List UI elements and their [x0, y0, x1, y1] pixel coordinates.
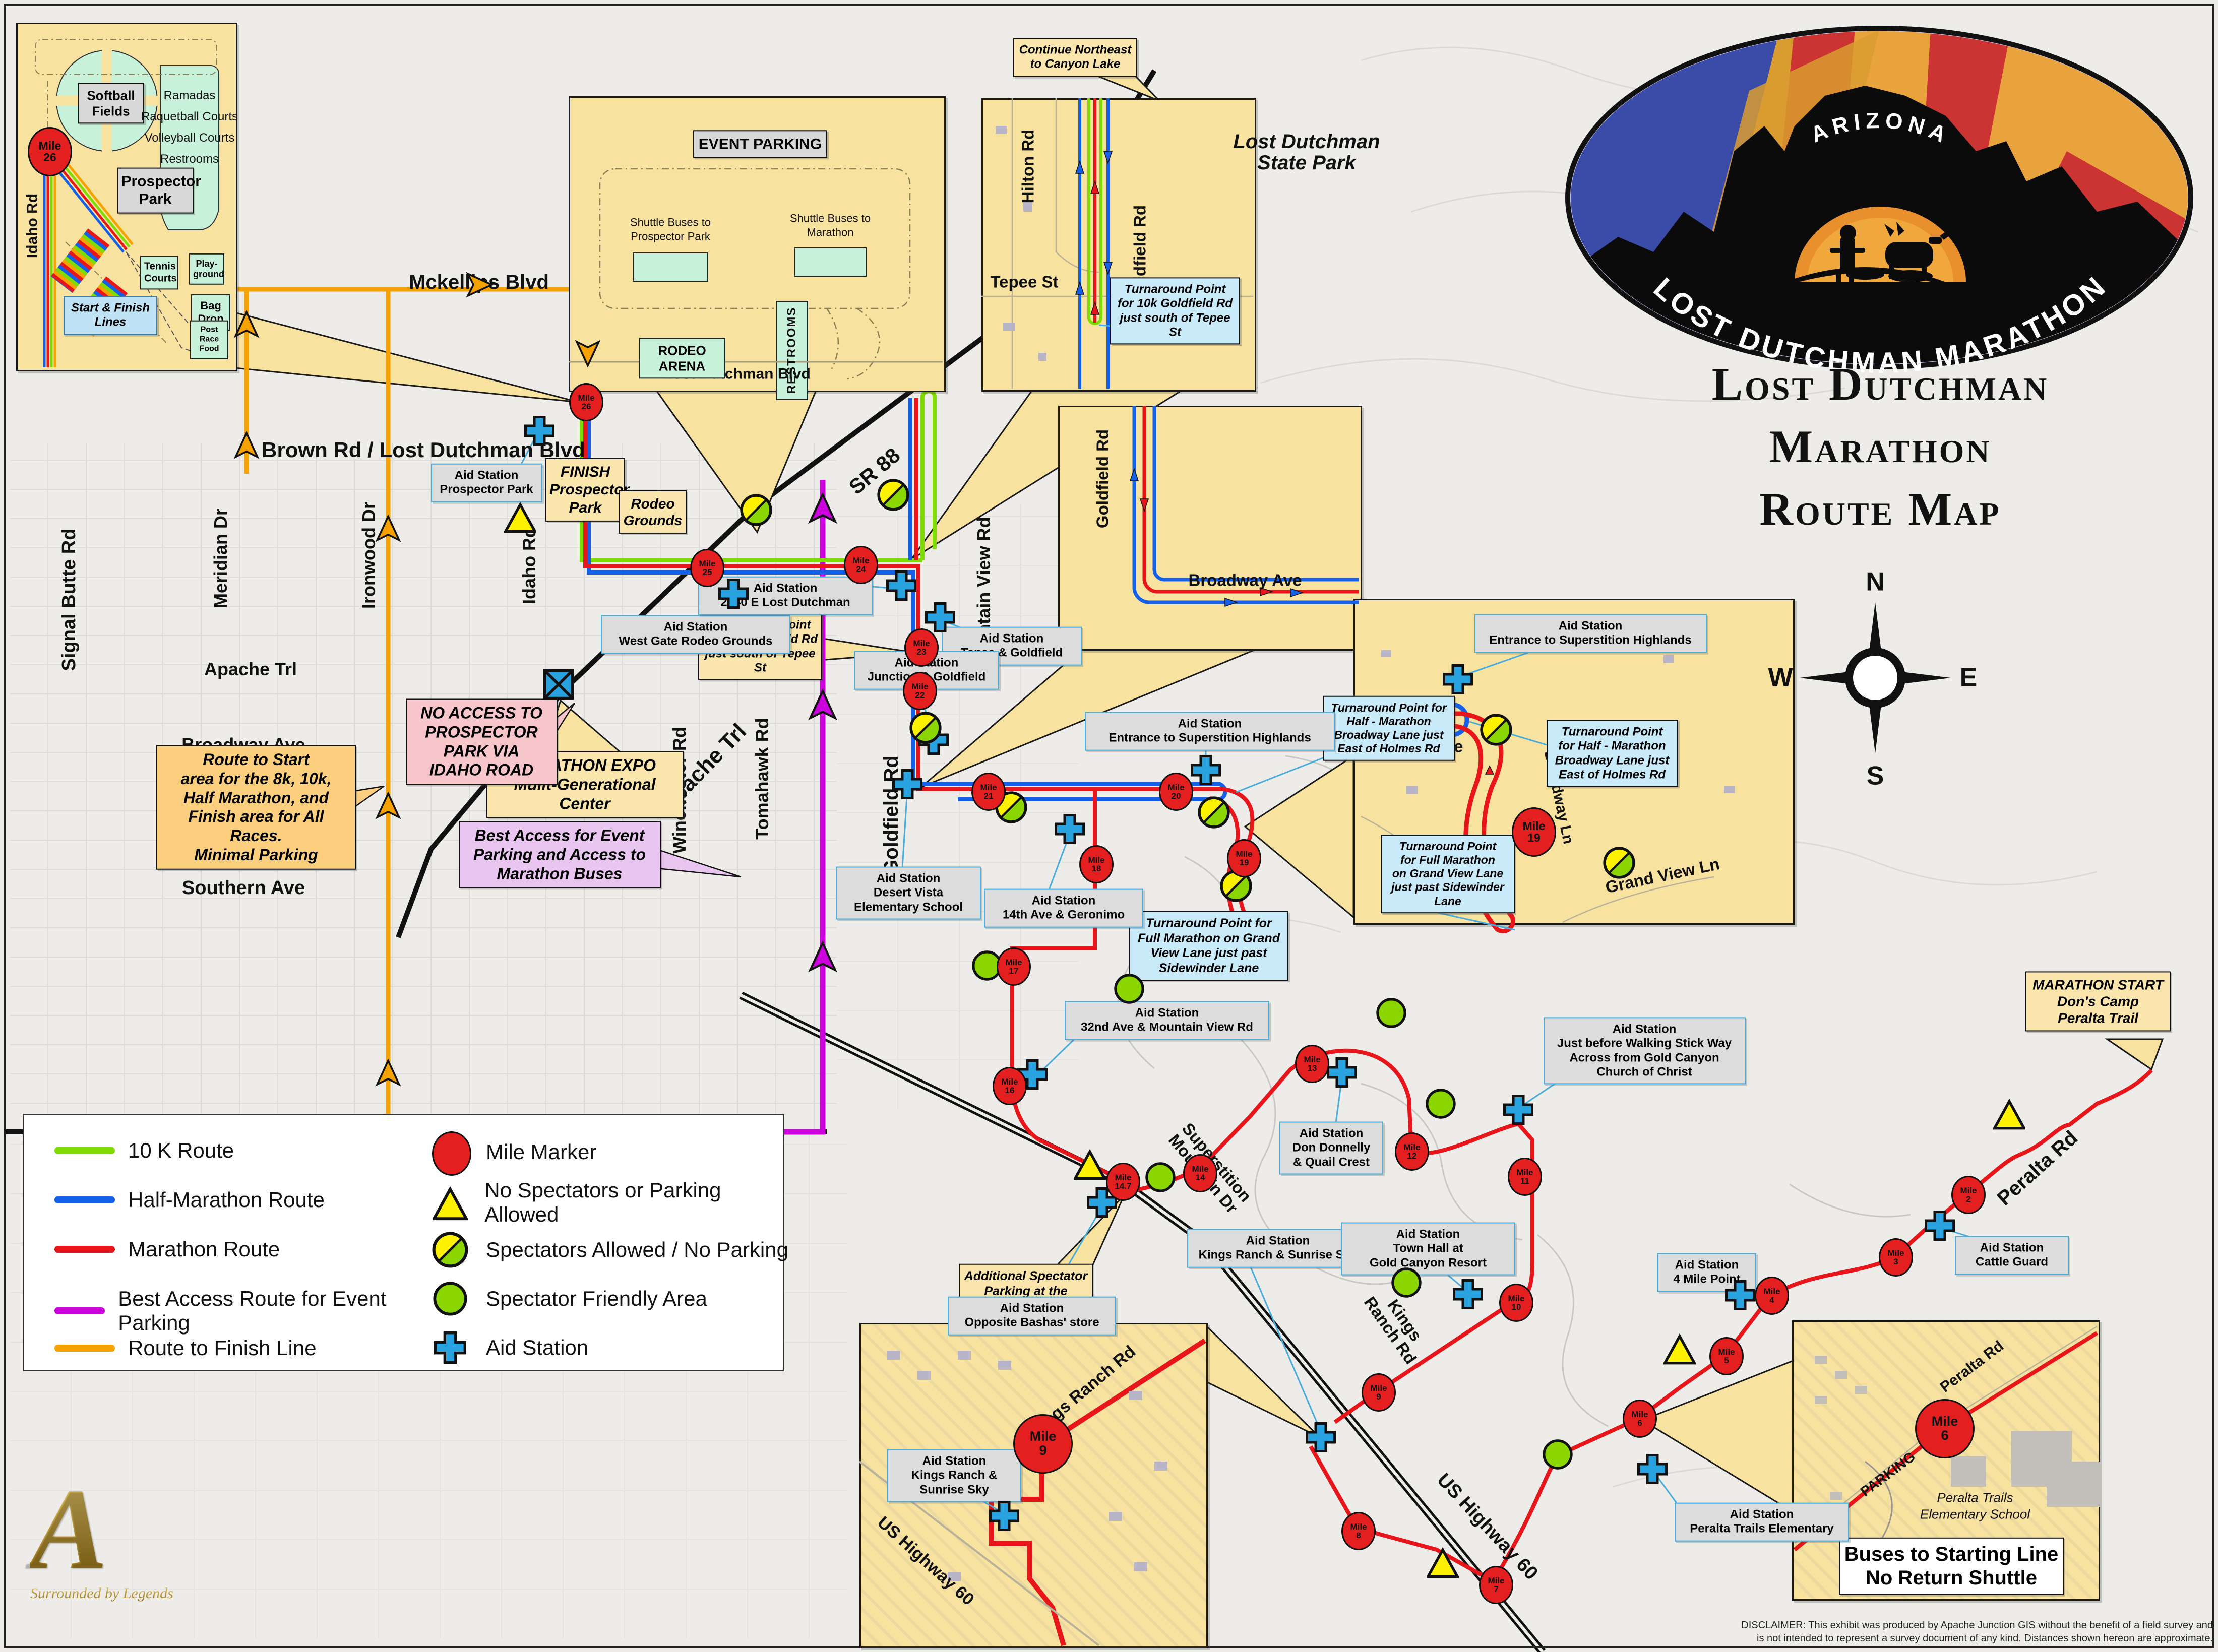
mile-marker: Mile23 — [904, 628, 939, 667]
legend-route-label: Best Access Route for Event Parking — [118, 1287, 407, 1335]
mile-marker: Mile14 — [1183, 1154, 1217, 1192]
mile-marker-number: 3 — [1893, 1257, 1898, 1266]
mile-marker-number: 18 — [1092, 864, 1101, 873]
route-arrow — [232, 310, 261, 340]
aid-station-icon — [1725, 1280, 1755, 1310]
street-label-vertical: Meridian Dr — [211, 509, 230, 608]
mile-marker-word: Mile — [1403, 1143, 1420, 1152]
aid-station-label: Aid Station Cattle Guard — [1955, 1236, 2069, 1275]
mile-marker-number: 26 — [582, 402, 591, 411]
mile-marker-number: 11 — [1520, 1177, 1529, 1185]
disclaimer: DISCLAIMER: This exhibit was produced by… — [1741, 1619, 2213, 1645]
legend-symbol-icon-holder — [427, 1129, 473, 1175]
aid-station-label: Aid Station Just before Walking Stick Wa… — [1544, 1017, 1746, 1084]
marathon-expo-icon — [542, 668, 575, 701]
mile-marker: Mile17 — [997, 947, 1031, 986]
street-label-vertical: Idaho Rd — [520, 527, 539, 604]
street-label: Tepee St — [990, 274, 1058, 291]
title-line-3: Route Map — [1633, 478, 2127, 540]
route-arrow — [573, 338, 602, 367]
map-title: Lost Dutchman Marathon Route Map — [1633, 353, 2127, 541]
mile-marker: Mile9 — [1013, 1414, 1073, 1474]
mile-marker-word: Mile — [913, 639, 930, 648]
mile-marker: Mile6 — [1623, 1400, 1657, 1438]
aid-station-icon — [1925, 1211, 1955, 1241]
best-access-note: Best Access for Event Parking and Access… — [459, 821, 661, 888]
mile-marker-number: 13 — [1308, 1064, 1317, 1072]
compass-letter-n: N — [1866, 568, 1885, 596]
branding-monogram: A — [30, 1477, 192, 1581]
street-label-vertical: Idaho Rd — [24, 194, 40, 258]
mile-marker-number: 23 — [917, 648, 927, 656]
street-label: Peralta Rd — [1937, 1338, 2006, 1395]
inset-text: Restrooms — [160, 152, 219, 167]
mile-marker-number: 26 — [43, 152, 56, 163]
mile-marker-word: Mile — [1370, 1384, 1387, 1392]
mile-marker-word: Mile — [1523, 820, 1546, 832]
aid-station-label: Aid Station Peralta Trails Elementary — [1675, 1503, 1849, 1542]
facility-label: Play- ground — [189, 253, 224, 285]
mile-marker-number: 22 — [915, 691, 925, 700]
spectator-friendly-icon — [1542, 1439, 1573, 1470]
mile-marker: Mile9 — [1362, 1373, 1396, 1412]
mile-marker-number: 17 — [1009, 967, 1019, 975]
aid-station-icon — [524, 416, 555, 446]
mile-marker: Mile21 — [971, 773, 1006, 811]
aid-station-icon — [1637, 1454, 1668, 1484]
mile-marker: Mile3 — [1879, 1238, 1913, 1277]
street-label-vertical: Hilton Rd — [1020, 130, 1037, 204]
mile-marker-number: 2 — [1966, 1195, 1970, 1203]
aid-station-icon — [1327, 1057, 1357, 1088]
inset-text: Volleyball Courts — [145, 131, 235, 146]
facility-label: RODEO ARENA — [639, 338, 725, 378]
aid-station-label: Aid Station Don Donnelly & Quail Crest — [1279, 1122, 1383, 1175]
aid-station-label: Aid Station Kings Ranch & Sunrise Sky — [887, 1449, 1021, 1502]
mile-marker-number: 25 — [703, 568, 712, 577]
disclaimer-line-2: is not intended to represent a survey do… — [1741, 1632, 2213, 1645]
mile-marker-number: 24 — [856, 565, 866, 574]
mile-marker: Mile5 — [1709, 1337, 1744, 1375]
map-canvas: ARIZONA LOST DUTCHMAN MARATHON 10 K Rout… — [0, 0, 2218, 1652]
route-arrow — [464, 270, 494, 299]
legend-route-item: Half-Marathon Route — [54, 1188, 407, 1212]
mile-marker: Mile13 — [1295, 1045, 1329, 1083]
inset-text: RESTROOMS — [784, 307, 799, 394]
inset-text: Shuttle Buses to Marathon — [790, 212, 871, 239]
legend-symbol-item: Aid Station — [427, 1325, 790, 1370]
spectator-friendly-icon — [1376, 997, 1407, 1029]
mile-marker-word: Mile — [699, 559, 715, 568]
aid-station-label: Aid Station Opposite Bashas' store — [948, 1297, 1116, 1336]
mile-marker-word: Mile — [1631, 1410, 1648, 1419]
aid-station-label: Aid Station Desert Vista Elementary Scho… — [836, 867, 981, 920]
legend-symbol-label: Spectator Friendly Area — [486, 1287, 707, 1311]
legend-route-label: Marathon Route — [128, 1237, 280, 1261]
legend-route-swatch — [54, 1246, 115, 1253]
mile-marker-word: Mile — [1508, 1294, 1524, 1303]
legend-symbol-label: No Spectators or Parking Allowed — [484, 1178, 790, 1227]
mile-marker-number: 9 — [1376, 1392, 1381, 1401]
spectator-friendly-icon — [433, 1281, 468, 1316]
no-spectators-icon — [1664, 1333, 1696, 1366]
street-label: Peralta Rd — [1993, 1127, 2081, 1210]
mile-marker-word: Mile — [1763, 1287, 1780, 1296]
branding-text: Surrounded by Legends — [30, 1585, 192, 1602]
mile-marker-number: 9 — [1039, 1444, 1046, 1458]
mile-marker-number: 14.7 — [1115, 1182, 1131, 1190]
mile-marker-word: Mile — [980, 783, 997, 792]
route-arrow — [806, 941, 839, 974]
mile-marker-word: Mile — [1192, 1165, 1208, 1173]
callout-note: Continue Northeast to Canyon Lake — [1013, 38, 1137, 77]
spectator-friendly-icon — [1145, 1162, 1176, 1193]
aid-station-label: Aid Station Entrance to Superstition Hig… — [1085, 712, 1335, 751]
route-to-start-note: Route to Start area for the 8k, 10k, Hal… — [156, 745, 356, 870]
inset-text: Peralta Trails Elementary School — [1920, 1490, 2030, 1522]
mile-marker-word: Mile — [1115, 1173, 1131, 1182]
mile-marker: Mile12 — [1395, 1132, 1429, 1171]
legend-route-label: 10 K Route — [128, 1138, 234, 1163]
legend-route-swatch — [54, 1307, 105, 1314]
compass-letter-w: W — [1768, 664, 1793, 692]
aid-station-label: Aid Station Entrance to Superstition Hig… — [1474, 614, 1707, 653]
title-line-1: Lost Dutchman — [1633, 353, 2127, 415]
mile-marker: Mile20 — [1159, 773, 1193, 811]
spectators-no-parking-icon — [1197, 796, 1230, 829]
spectator-friendly-icon — [1391, 1267, 1422, 1298]
aid-station-icon — [925, 602, 955, 632]
no-spectators-icon — [1427, 1547, 1459, 1579]
aid-station-icon — [1443, 664, 1473, 694]
mile-marker-number: 6 — [1941, 1429, 1948, 1443]
aid-station-label: Aid Station Prospector Park — [431, 464, 542, 502]
route-arrow — [806, 689, 839, 722]
aid-station-icon — [1453, 1279, 1483, 1309]
street-label-vertical: Tomahawk Rd — [753, 718, 772, 839]
mile-marker-number: 10 — [1512, 1303, 1521, 1311]
mile-marker-word: Mile — [1932, 1415, 1958, 1429]
spectators-no-parking-icon — [1480, 713, 1513, 746]
legend-symbol-icon-holder — [427, 1276, 473, 1321]
street-label-vertical: Signal Butte Rd — [59, 529, 80, 671]
mile-marker: Mile8 — [1341, 1512, 1376, 1550]
legend-route-item: Marathon Route — [54, 1237, 407, 1261]
no-spectators-icon — [1993, 1099, 2025, 1131]
mile-marker — [432, 1131, 471, 1176]
aid-station-icon — [434, 1331, 466, 1364]
aid-station-icon — [1055, 814, 1085, 844]
mile-marker-word: Mile — [1350, 1522, 1367, 1531]
mile-marker: Mile18 — [1079, 845, 1114, 883]
mile-marker-number: 5 — [1724, 1356, 1729, 1365]
aid-station-label: Aid Station 32nd Ave & Mountain View Rd — [1065, 1001, 1269, 1040]
area-label: Prospector Park — [117, 168, 194, 214]
mile-marker: Mile19 — [1227, 839, 1261, 877]
mile-marker-word: Mile — [1088, 856, 1104, 864]
legend-symbol-item: Spectator Friendly Area — [427, 1276, 790, 1321]
no-spectators-icon — [1074, 1149, 1106, 1181]
legend-symbol-icon-holder — [427, 1325, 473, 1370]
mile-marker: Mile11 — [1508, 1158, 1542, 1196]
mile-marker: Mile14.7 — [1106, 1163, 1140, 1201]
mile-marker-word: Mile — [1001, 1077, 1018, 1086]
branding-logo: A Surrounded by Legends — [30, 1477, 192, 1602]
route-arrow — [374, 792, 403, 821]
facility-label: Post Race Food — [190, 321, 228, 359]
legend-symbol-label: Mile Marker — [486, 1140, 596, 1164]
legend-symbol-label: Spectators Allowed / No Parking — [486, 1238, 788, 1262]
legend-route-label: Half-Marathon Route — [128, 1188, 325, 1212]
mile-marker: Mile25 — [690, 549, 724, 587]
mile-marker-number: 4 — [1769, 1296, 1774, 1304]
mile-marker: Mile16 — [993, 1067, 1027, 1105]
aid-station-icon — [989, 1501, 1019, 1531]
title-line-2: Marathon — [1633, 415, 2127, 478]
street-label: Broadway Ave — [1189, 572, 1302, 590]
mile-marker-word: Mile — [578, 394, 594, 402]
mile-marker-word: Mile — [1516, 1168, 1533, 1177]
aid-station-icon — [718, 579, 749, 609]
mile-marker-number: 12 — [1407, 1152, 1417, 1160]
mile-marker-word: Mile — [1167, 783, 1184, 792]
mile-marker: Mile26 — [569, 383, 603, 421]
street-label: Apache Trl — [204, 660, 297, 679]
mile-marker: Mile2 — [1951, 1176, 1986, 1214]
turnaround-note: Turnaround Point for Full Marathon on Gr… — [1129, 911, 1288, 981]
route-arrow — [806, 492, 839, 526]
aid-station-label: Aid Station Town Hall at Gold Canyon Res… — [1341, 1223, 1515, 1276]
mile-marker-word: Mile — [1030, 1430, 1057, 1444]
legend-symbol-label: Aid Station — [486, 1336, 588, 1360]
mile-marker-number: 20 — [1172, 792, 1181, 800]
mile-marker-number: 21 — [984, 792, 994, 800]
mile-marker: Mile10 — [1499, 1284, 1533, 1322]
aid-station-label: Aid Station 14th Ave & Geronimo — [984, 889, 1143, 928]
disclaimer-line-1: DISCLAIMER: This exhibit was produced by… — [1741, 1619, 2213, 1632]
mile-marker-word: Mile — [852, 556, 869, 565]
mile-marker-number: 19 — [1527, 832, 1541, 844]
aid-station-label: Aid Station West Gate Rodeo Grounds — [601, 615, 790, 654]
mile-marker: Mile26 — [28, 127, 72, 176]
area-label: Softball Fields — [78, 83, 144, 123]
spectator-friendly-icon — [1114, 973, 1145, 1004]
spectators-no-parking-icon — [877, 478, 910, 512]
mile-marker-word: Mile — [1304, 1055, 1320, 1064]
street-label: PARKING — [1858, 1449, 1918, 1499]
street-label: US Highway 60 — [874, 1513, 977, 1609]
turnaround-note: Turnaround Point for Half - Marathon Bro… — [1323, 696, 1455, 761]
legend-symbol-item: Spectators Allowed / No Parking — [427, 1227, 790, 1273]
legend-route-item: 10 K Route — [54, 1138, 407, 1163]
mile-marker-word: Mile — [1005, 958, 1022, 967]
inset-text: Shuttle Buses to Prospector Park — [630, 216, 711, 243]
mile-marker-word: Mile — [911, 682, 928, 691]
mile-marker-word: Mile — [1718, 1348, 1735, 1356]
start-finish-label: Start & Finish Lines — [64, 296, 157, 335]
street-label: Southern Ave — [182, 878, 305, 899]
callout-note: MARATHON START Don's Camp Peralta Trail — [2025, 971, 2171, 1031]
mile-marker: Mile24 — [844, 546, 878, 584]
mile-marker-number: 7 — [1494, 1585, 1498, 1594]
aid-station-icon — [1191, 755, 1221, 785]
route-arrow — [374, 515, 403, 544]
mile-marker-word: Mile — [39, 140, 61, 152]
mile-marker-number: 6 — [1637, 1419, 1642, 1427]
inset-text: Ramadas — [164, 88, 216, 103]
mile-marker-word: Mile — [1960, 1186, 1977, 1195]
callout-note: FINISH Prospector Park — [545, 458, 625, 522]
mile-marker: Mile19 — [1512, 807, 1556, 857]
bus-note: Buses to Starting Line No Return Shuttle — [1839, 1538, 2064, 1595]
map-annotations: Mckellips BlvdBrown Rd / Lost Dutchman B… — [0, 0, 2218, 1652]
legend-symbol-item: No Spectators or Parking Allowed — [427, 1178, 790, 1227]
legend-route-swatch — [54, 1196, 115, 1203]
turnaround-note: Turnaround Point for Half - Marathon Bro… — [1547, 720, 1678, 787]
spectators-no-parking-icon — [1603, 846, 1636, 879]
mile-marker-number: 16 — [1005, 1086, 1015, 1095]
no-access-note: NO ACCESS TO PROSPECTOR PARK VIA IDAHO R… — [406, 699, 558, 785]
mile-marker-word: Mile — [1887, 1249, 1904, 1257]
facility-label: Tennis Courts — [140, 256, 178, 289]
mile-marker-word: Mile — [1236, 850, 1252, 858]
legend-symbol-icon-holder — [427, 1180, 471, 1225]
legend-route-label: Route to Finish Line — [128, 1336, 317, 1360]
spectator-friendly-icon — [1425, 1088, 1456, 1119]
turnaround-note: Turnaround Point for 10k Goldfield Rd ju… — [1110, 277, 1240, 344]
mile-marker-number: 14 — [1196, 1173, 1205, 1182]
mile-marker: Mile6 — [1915, 1399, 1975, 1458]
aid-station-icon — [1306, 1422, 1336, 1452]
legend-symbol-icon-holder — [427, 1227, 473, 1273]
spectators-no-parking-icon — [740, 493, 773, 527]
route-arrow — [374, 1059, 403, 1088]
spectators-no-parking-icon — [909, 711, 942, 744]
legend-route-swatch — [54, 1147, 115, 1154]
mile-marker: Mile4 — [1755, 1277, 1789, 1315]
legend-route-swatch — [54, 1345, 115, 1352]
legend: 10 K RouteHalf-Marathon RouteMarathon Ro… — [23, 1114, 784, 1371]
route-arrow — [232, 431, 261, 461]
street-label-vertical: Goldfield Rd — [1094, 429, 1112, 528]
callout-note: Rodeo Grounds — [619, 490, 687, 534]
legend-symbol-item: Mile Marker — [427, 1129, 790, 1175]
aid-station-icon — [886, 570, 916, 601]
compass-letter-e: E — [1960, 664, 1978, 692]
area-label: EVENT PARKING — [693, 130, 827, 158]
legend-route-item: Route to Finish Line — [54, 1336, 407, 1360]
turnaround-note: Turnaround Point for Full Marathon on Gr… — [1381, 835, 1515, 913]
inset-text: Raquetball Courts — [141, 109, 238, 124]
mile-marker-number: 8 — [1356, 1531, 1361, 1540]
no-spectators-icon — [433, 1186, 468, 1222]
street-label: Lost Dutchman State Park — [1233, 131, 1380, 173]
no-spectators-icon — [504, 502, 536, 534]
aid-station-icon — [1503, 1095, 1533, 1125]
compass-letter-s: S — [1867, 763, 1884, 790]
mile-marker: Mile22 — [903, 672, 937, 710]
aid-station-icon — [892, 769, 922, 799]
legend-route-item: Best Access Route for Event Parking — [54, 1287, 407, 1335]
mile-marker-number: 19 — [1240, 858, 1249, 867]
spectators-no-parking-icon — [432, 1231, 469, 1268]
mile-marker: Mile7 — [1479, 1566, 1513, 1604]
mile-marker-word: Mile — [1488, 1576, 1504, 1585]
